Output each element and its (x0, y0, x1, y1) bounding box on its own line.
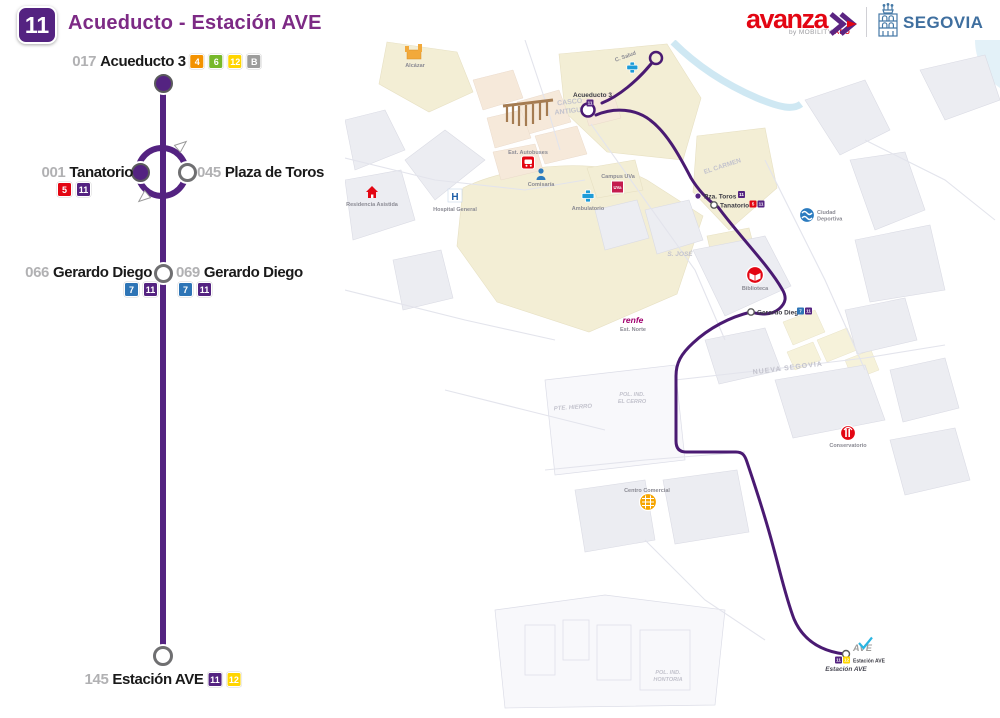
line-badge-6: 6 (209, 54, 224, 69)
ciudad-deportiva-label: Ciudad (817, 210, 836, 216)
hospital-label: Hospital General (433, 207, 477, 213)
map-base-areas (345, 40, 1000, 708)
map-badge-12-text: 12 (844, 658, 850, 663)
alcazar-label: Alcázar (405, 63, 425, 69)
map-stop-pza-toros-dot (695, 193, 701, 199)
line-badge-12: 12 (226, 672, 241, 687)
page-title: Acueducto - Estación AVE (68, 12, 322, 35)
map-badge-11-text: 11 (739, 192, 744, 197)
map-stop-estacion-ave-ring (843, 651, 850, 658)
line-badge-7: 7 (178, 282, 193, 297)
ciudad-deportiva-icon (800, 208, 815, 223)
ambulatorio-label: Ambulatorio (572, 206, 605, 212)
diagram-stop-estacion-ave: 145 Estación AVE 11 12 (85, 671, 242, 688)
hospital-icon: H (448, 189, 462, 203)
area-label-hontoria2: HONTORIA (653, 677, 682, 683)
line-badge-B: B (247, 54, 262, 69)
conservatorio-icon (841, 426, 856, 441)
stop-code: 069 (176, 264, 200, 281)
stop-code: 045 (197, 164, 221, 181)
map-badge-11-text: 11 (806, 309, 811, 314)
line-badge-11: 11 (207, 672, 222, 687)
line-badge-11: 11 (76, 182, 91, 197)
renfe-logo: renfe (623, 315, 644, 325)
map-stop-estacion-ave-label: Estación AVE (825, 666, 867, 673)
map-stop-gerardo-diego-ring (748, 309, 754, 315)
bus-station-icon (522, 156, 535, 169)
stop-name: Tanatorio (69, 164, 133, 181)
diagram-stop-066-badges: 7 11 (124, 281, 158, 298)
area-label-el-cerro2: EL CERRO (618, 399, 647, 405)
line-badge-5: 5 (57, 182, 72, 197)
line-badge-12: 12 (228, 54, 243, 69)
stop-name: Acueducto 3 (100, 53, 186, 70)
route-poster: 11 Acueducto - Estación AVE avanza by MO… (0, 0, 1000, 713)
line-badge-11: 11 (143, 282, 158, 297)
diagram-stop-plaza-de-toros: 045 Plaza de Toros (197, 164, 324, 181)
map-stop-tanatorio-ring (711, 202, 717, 208)
stop-code: 066 (25, 264, 49, 281)
stop-name: Estación AVE (112, 671, 203, 688)
diagram-stop-gerardo-diego-069: 069 Gerardo Diego (176, 264, 303, 281)
stop-name: Plaza de Toros (225, 164, 324, 181)
logo-divider (866, 7, 867, 37)
centro-comercial-icon (640, 494, 657, 511)
campus-uva-label: Campus UVa (601, 174, 636, 180)
area-label-el-cerro: POL. IND. (619, 392, 645, 398)
city-map: CASCO ANTIGUO EL CARMEN S. JOSÉ NUEVA SE… (345, 40, 1000, 713)
stop-code: 017 (72, 53, 96, 70)
stop-code: 145 (85, 671, 109, 688)
diagram-stop-tanatorio-badges: 5 11 (57, 181, 91, 198)
area-label-hontoria: POL. IND. (655, 670, 681, 676)
map-badge-7-text: 7 (799, 309, 802, 314)
map-stop-estacion-ave-caption: Estación AVE (853, 659, 886, 665)
svg-text:H: H (451, 192, 458, 203)
avanza-chevrons-icon (828, 11, 862, 37)
segovia-aqueduct-icon (875, 3, 901, 40)
map-stop-acueducto3-label: Acueducto 3 (573, 92, 612, 99)
route-number-badge: 11 (17, 6, 57, 44)
uva-icon-text: UVa (614, 185, 623, 190)
stop-name: Gerardo Diego (204, 264, 303, 281)
comisaria-label: Comisaría (528, 182, 556, 188)
map-badge-11-text: 11 (759, 202, 764, 207)
line-badge-11: 11 (197, 282, 212, 297)
stop-marker-acueducto3 (154, 74, 173, 93)
est-autobuses-label: Est. Autobuses (508, 150, 548, 156)
biblioteca-label: Biblioteca (742, 286, 769, 292)
est-norte-label: Est. Norte (620, 327, 646, 333)
biblioteca-icon (747, 267, 764, 284)
stop-name: Gerardo Diego (53, 264, 152, 281)
ave-logo: AVE (852, 638, 873, 654)
area-label-s-jose: S. JOSÉ (667, 249, 693, 258)
map-badge-11-text: 11 (836, 658, 841, 663)
map-badge-5-text: 5 (752, 202, 755, 207)
line-badge-7: 7 (124, 282, 139, 297)
stop-marker-tanatorio (131, 163, 150, 182)
stop-marker-plaza-de-toros (178, 163, 197, 182)
map-stop-pza-toros-label: Pza. Toros (704, 194, 737, 201)
stop-code: 001 (42, 164, 66, 181)
diagram-stop-acueducto3: 017 Acueducto 3 4 6 12 B (72, 53, 261, 70)
segovia-logo-text: SEGOVIA (903, 13, 983, 33)
diagram-stop-069-badges: 7 11 (178, 281, 212, 298)
map-badge-11-text: 11 (588, 101, 593, 106)
line-badge-4: 4 (190, 54, 205, 69)
map-stop-gerardo-diego-label: Gerardo Diego (757, 310, 802, 317)
residencia-asistida-label: Residencia Asistida (346, 202, 399, 208)
ciudad-deportiva-label2: Deportiva (817, 217, 843, 223)
campus-uva-icon: UVa (612, 181, 624, 193)
conservatorio-label: Conservatorio (829, 443, 867, 449)
diagram-stop-gerardo-diego-066: 066 Gerardo Diego (25, 264, 152, 281)
stop-marker-gerardo-diego (154, 264, 173, 283)
diagram-stop-tanatorio: 001 Tanatorio (42, 164, 133, 181)
stop-marker-estacion-ave (153, 646, 173, 666)
map-stop-tanatorio-label: Tanatorio (720, 203, 749, 210)
